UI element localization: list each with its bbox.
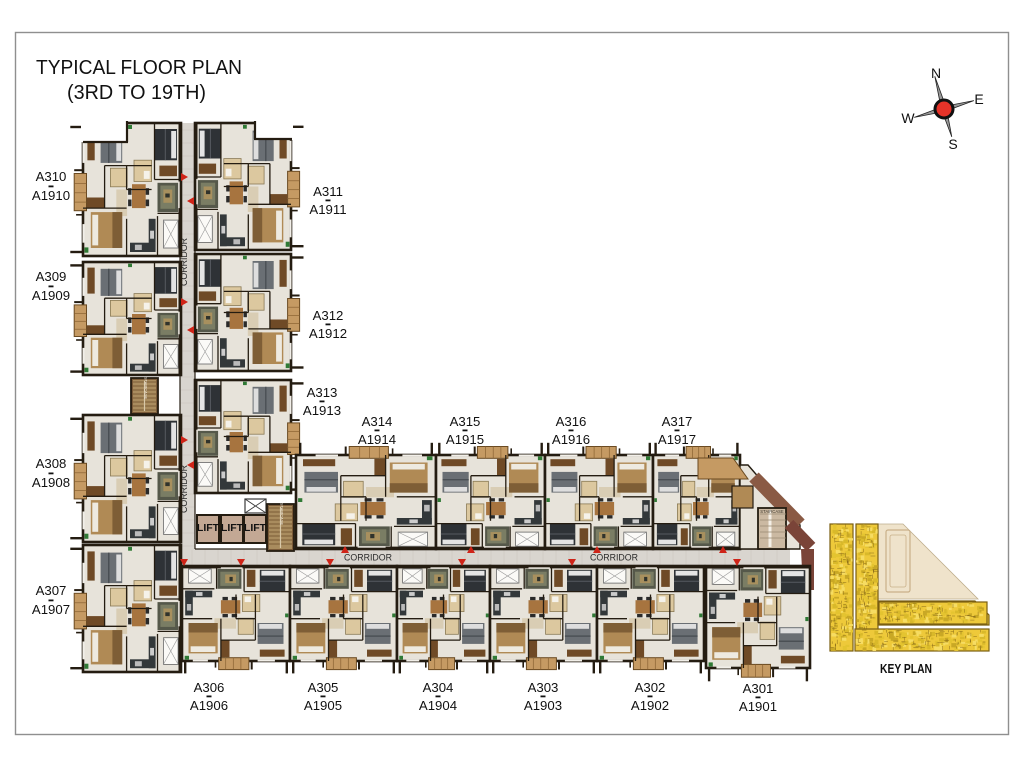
svg-text:A1901: A1901: [739, 699, 777, 714]
svg-text:A302: A302: [635, 680, 666, 695]
svg-text:LIFT: LIFT: [197, 522, 220, 534]
svg-text:A301: A301: [743, 681, 774, 696]
svg-text:A1915: A1915: [446, 432, 484, 447]
svg-text:A1917: A1917: [658, 432, 696, 447]
svg-text:A1907: A1907: [32, 602, 70, 617]
svg-text:A309: A309: [36, 269, 67, 284]
svg-text:A1906: A1906: [190, 698, 228, 713]
svg-text:A1903: A1903: [524, 698, 562, 713]
svg-text:A1909: A1909: [32, 288, 70, 303]
svg-text:A310: A310: [36, 169, 67, 184]
svg-text:A305: A305: [308, 680, 339, 695]
svg-text:A1908: A1908: [32, 475, 70, 490]
svg-text:STAIRCASE: STAIRCASE: [144, 377, 149, 400]
svg-text:A315: A315: [450, 414, 481, 429]
svg-text:N: N: [931, 65, 941, 81]
svg-text:A1902: A1902: [631, 698, 669, 713]
svg-text:A1914: A1914: [358, 432, 396, 447]
svg-text:CORRIDOR: CORRIDOR: [590, 553, 638, 563]
svg-text:A1913: A1913: [303, 403, 341, 418]
svg-text:STAIRCASE: STAIRCASE: [280, 503, 285, 526]
svg-text:A1905: A1905: [304, 698, 342, 713]
svg-text:A312: A312: [313, 308, 344, 323]
svg-text:A314: A314: [362, 414, 393, 429]
svg-text:(3RD TO 19TH): (3RD TO 19TH): [67, 81, 206, 104]
svg-text:A1910: A1910: [32, 188, 70, 203]
svg-text:A307: A307: [36, 583, 67, 598]
svg-text:A1911: A1911: [309, 202, 346, 217]
svg-text:A308: A308: [36, 456, 67, 471]
svg-text:A306: A306: [194, 680, 225, 695]
svg-text:LIFT: LIFT: [221, 522, 244, 534]
svg-text:KEY PLAN: KEY PLAN: [880, 661, 932, 676]
svg-text:A316: A316: [556, 414, 587, 429]
svg-text:CORRIDOR: CORRIDOR: [344, 553, 392, 563]
svg-text:A311: A311: [313, 184, 343, 199]
svg-text:A1912: A1912: [309, 326, 347, 341]
svg-text:E: E: [974, 91, 983, 107]
svg-text:A304: A304: [423, 680, 454, 695]
svg-text:A313: A313: [307, 385, 338, 400]
svg-text:TYPICAL FLOOR PLAN: TYPICAL FLOOR PLAN: [36, 56, 242, 79]
svg-text:A317: A317: [662, 414, 693, 429]
svg-text:S: S: [948, 136, 957, 152]
svg-text:A303: A303: [528, 680, 559, 695]
svg-text:W: W: [901, 110, 915, 126]
svg-text:LIFT: LIFT: [244, 522, 267, 534]
svg-text:STAIRCASE: STAIRCASE: [760, 509, 784, 514]
svg-text:A1904: A1904: [419, 698, 457, 713]
svg-text:A1916: A1916: [552, 432, 590, 447]
